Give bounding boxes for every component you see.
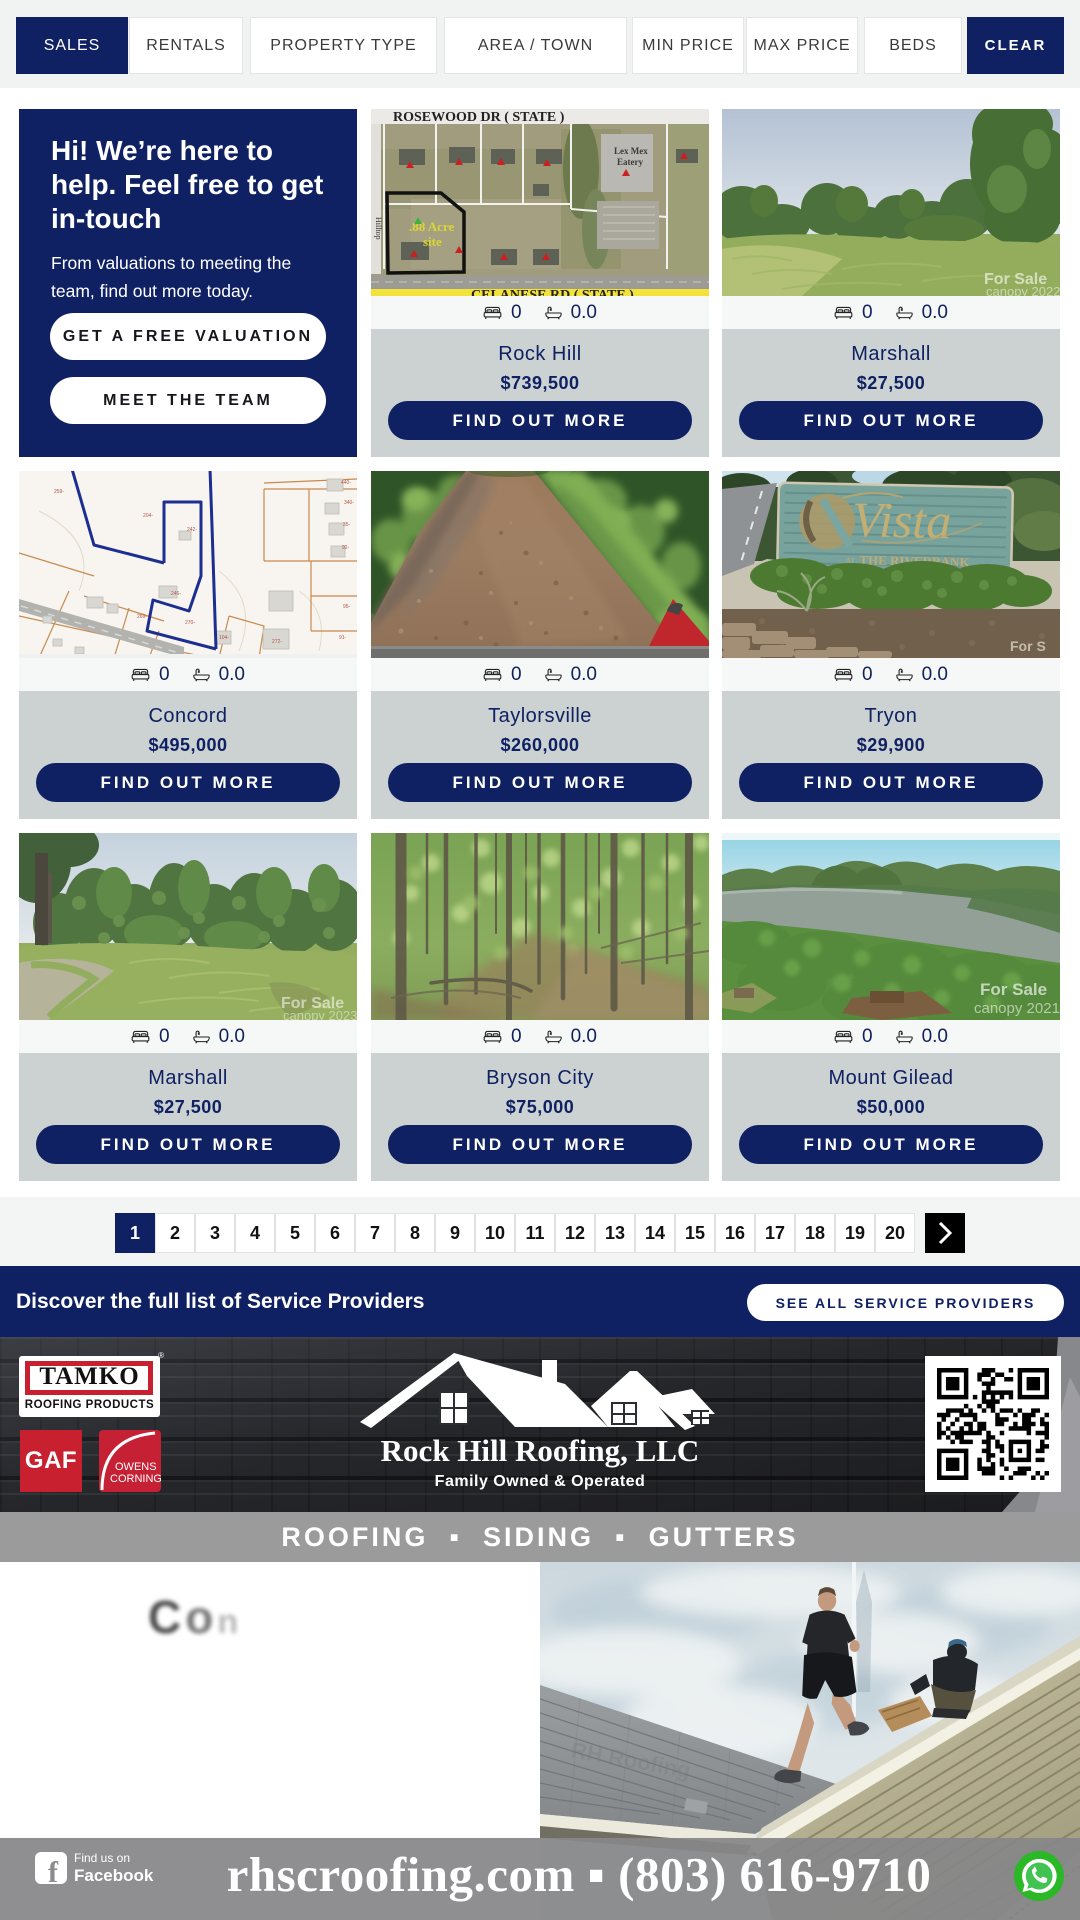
svg-text:canopy 2021: canopy 2021 (974, 1000, 1060, 1017)
svg-text:270-: 270- (185, 620, 195, 626)
svg-text:site: site (423, 234, 442, 249)
svg-text:104-: 104- (219, 635, 229, 641)
svg-text:canopy 2023: canopy 2023 (283, 1008, 357, 1020)
svg-text:92-: 92- (342, 545, 350, 551)
svg-text:35-: 35- (343, 522, 351, 528)
svg-text:204-: 204- (143, 513, 153, 519)
svg-text:ROSEWOOD DR ( STATE ): ROSEWOOD DR ( STATE ) (393, 110, 565, 125)
svg-text:242-: 242- (187, 527, 197, 533)
svg-text:340-: 340- (344, 500, 354, 506)
svg-text:91-: 91- (339, 635, 347, 641)
svg-text:Lex Mex: Lex Mex (614, 146, 648, 156)
svg-text:Hilltop: Hilltop (374, 217, 383, 240)
svg-text:440-: 440- (341, 480, 351, 486)
svg-text:CELANESE RD ( STATE ): CELANESE RD ( STATE ) (471, 288, 634, 296)
svg-text:canopy 2022: canopy 2022 (986, 284, 1060, 296)
svg-text:269-: 269- (137, 614, 147, 620)
svg-text:272-: 272- (272, 639, 282, 645)
svg-text:95-: 95- (343, 604, 351, 610)
svg-text:Eatery: Eatery (617, 157, 643, 167)
svg-text:For Sale: For Sale (980, 980, 1047, 999)
svg-text:For S: For S (1010, 638, 1046, 654)
svg-text:259-: 259- (54, 489, 64, 495)
svg-text:246-: 246- (171, 591, 181, 597)
